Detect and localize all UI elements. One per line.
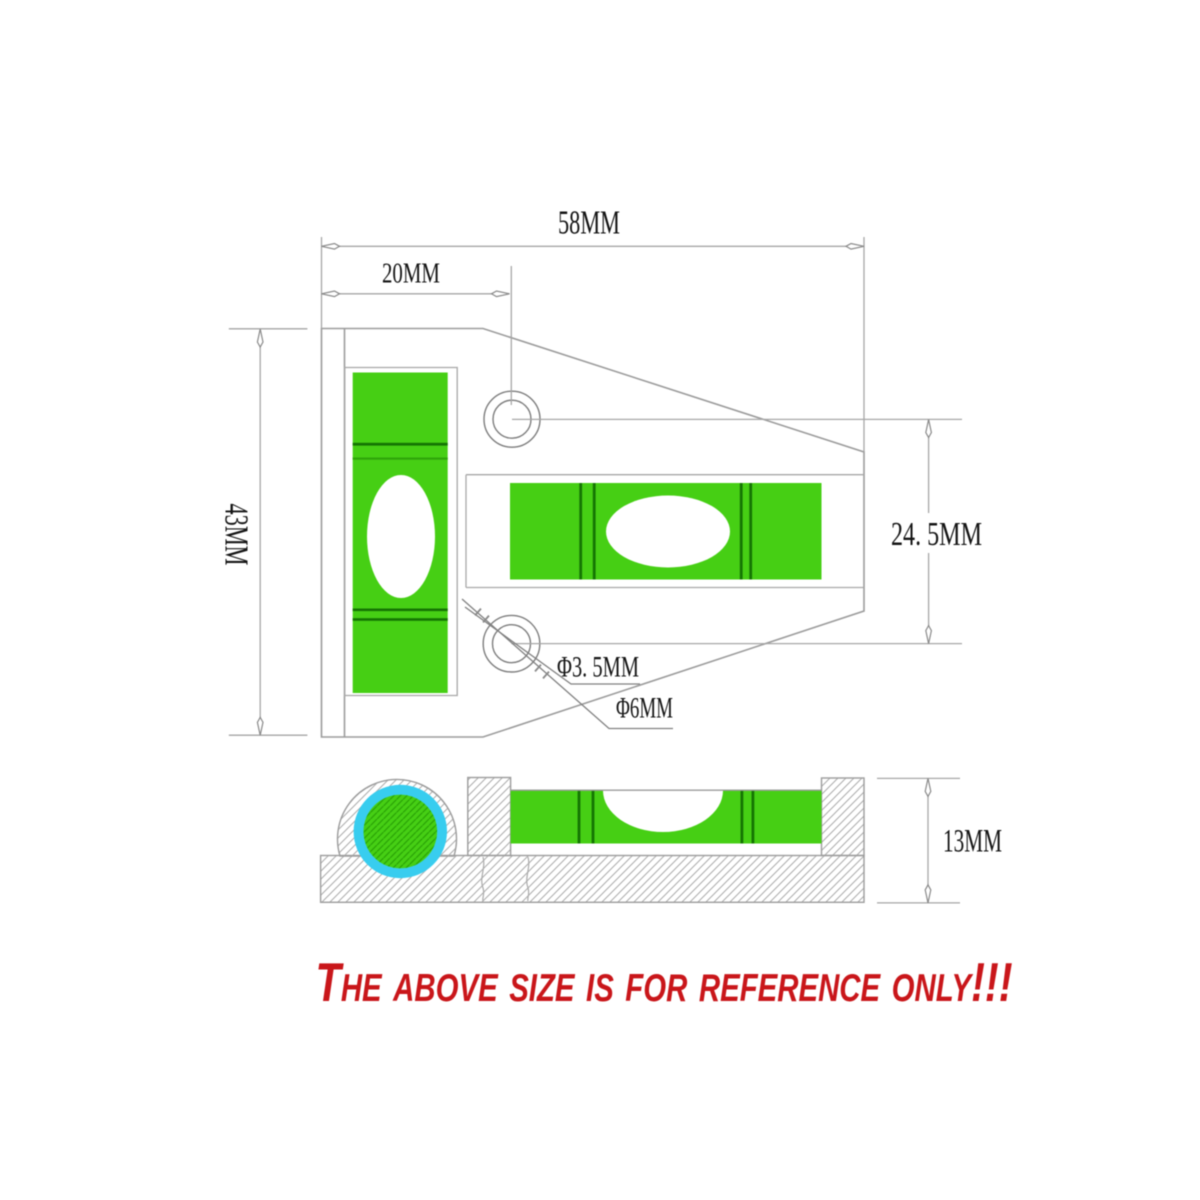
svg-text:Φ6MM: Φ6MM (616, 692, 673, 725)
svg-text:13MM: 13MM (943, 824, 1002, 860)
svg-text:The above size is for referenc: The above size is for reference only!!! (316, 951, 1013, 1013)
svg-text:43MM: 43MM (218, 504, 255, 566)
svg-text:Φ3. 5MM: Φ3. 5MM (557, 651, 639, 684)
svg-text:20MM: 20MM (382, 258, 440, 289)
svg-text:58MM: 58MM (558, 205, 620, 242)
svg-text:24. 5MM: 24. 5MM (891, 516, 982, 553)
